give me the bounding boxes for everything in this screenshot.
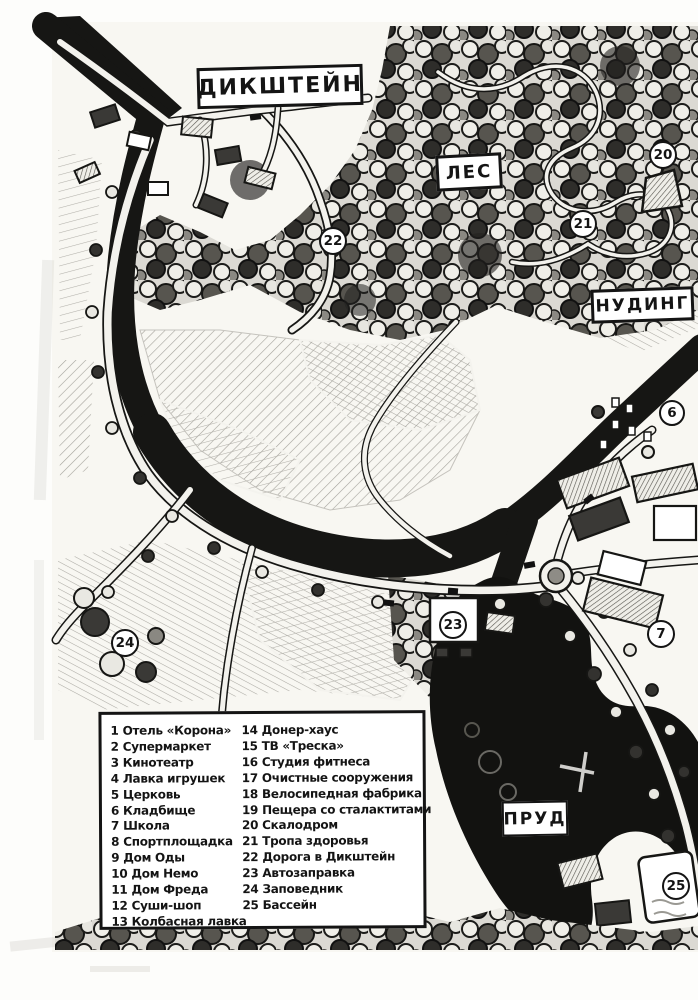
legend-item: 12Суши-шоп — [111, 898, 242, 915]
legend-item: 8Спортплощадка — [111, 834, 242, 851]
map-page: ДИКШТЕЙН ЛЕС НУДИНГ ПРУД 20 21 22 6 7 23… — [0, 0, 698, 1000]
label-dikstein: ДИКШТЕЙН — [196, 64, 363, 109]
legend-item: 5Церковь — [111, 787, 242, 804]
legend-item: 15ТВ «Треска» — [242, 738, 431, 755]
legend-item: 24Заповедник — [242, 881, 431, 898]
legend-item: 17Очистные сооружения — [242, 770, 431, 787]
map-marker-24: 24 — [111, 629, 139, 657]
label-forest: ЛЕС — [435, 152, 503, 191]
legend-item: 16Студия фитнеса — [242, 754, 431, 771]
map-legend: 1Отель «Корона» 2Супермаркет 3Кинотеатр … — [98, 710, 426, 930]
legend-item: 18Велосипедная фабрика — [242, 786, 431, 803]
roundabout — [540, 560, 572, 592]
legend-item: 19Пещера со сталактитами — [242, 802, 431, 819]
legend-item: 21Тропа здоровья — [242, 833, 431, 850]
map-marker-7: 7 — [647, 620, 675, 648]
map-marker-22: 22 — [319, 227, 347, 255]
climbing-wall — [642, 170, 682, 212]
legend-item: 11Дом Фреда — [111, 882, 242, 899]
label-nuding: НУДИНГ — [590, 286, 694, 324]
legend-item: 3Кинотеатр — [111, 755, 242, 772]
legend-item: 9Дом Оды — [111, 850, 242, 867]
map-marker-23: 23 — [439, 611, 467, 639]
legend-item: 7Школа — [111, 819, 242, 836]
legend-column-1: 1Отель «Корона» 2Супермаркет 3Кинотеатр … — [110, 723, 242, 930]
legend-item: 6Кладбище — [111, 803, 242, 820]
legend-item: 1Отель «Корона» — [110, 723, 241, 740]
legend-item: 22Дорога в Дикштейн — [242, 849, 431, 866]
map-marker-25: 25 — [662, 872, 690, 900]
legend-item: 25Бассейн — [242, 897, 431, 914]
map-marker-20: 20 — [649, 141, 677, 169]
legend-item: 23Автозаправка — [242, 865, 431, 882]
map-marker-21: 21 — [569, 210, 597, 238]
legend-item: 10Дом Немо — [111, 866, 242, 883]
legend-item: 14Донер-хаус — [241, 722, 430, 739]
legend-item: 4Лавка игрушек — [111, 771, 242, 788]
map-marker-6: 6 — [659, 400, 685, 426]
legend-item: 20Скалодром — [242, 818, 431, 835]
label-pond: ПРУД — [502, 800, 569, 836]
legend-item: 13Колбасная лавка — [111, 914, 242, 931]
legend-item: 2Супермаркет — [111, 739, 242, 756]
legend-column-2: 14Донер-хаус 15ТВ «Треска» 16Студия фитн… — [241, 722, 431, 930]
